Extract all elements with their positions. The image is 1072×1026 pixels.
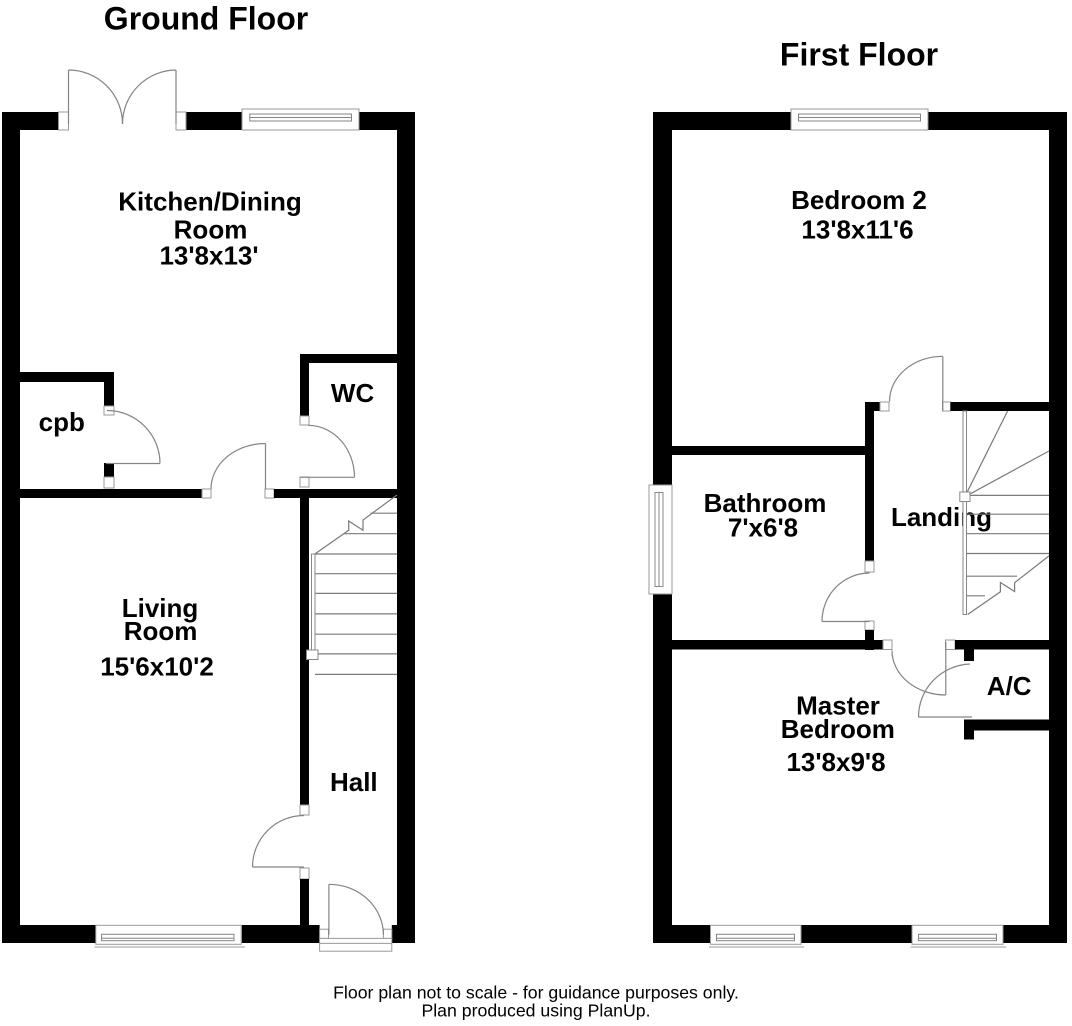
svg-text:13'8x11'6: 13'8x11'6 (801, 215, 913, 245)
svg-text:First Floor: First Floor (780, 37, 938, 73)
svg-text:A/C: A/C (987, 671, 1032, 701)
svg-text:Ground Floor: Ground Floor (104, 1, 308, 37)
svg-text:Landing: Landing (891, 502, 992, 532)
svg-text:Kitchen/Dining: Kitchen/Dining (118, 186, 301, 216)
svg-text:Bedroom: Bedroom (781, 714, 895, 744)
svg-text:Plan produced using PlanUp.: Plan produced using PlanUp. (421, 1001, 650, 1021)
svg-text:13'8x13': 13'8x13' (159, 241, 258, 271)
svg-text:Bedroom 2: Bedroom 2 (791, 185, 927, 215)
svg-text:13'8x9'8: 13'8x9'8 (786, 747, 885, 777)
svg-text:Floor plan not to scale - for: Floor plan not to scale - for guidance p… (333, 983, 739, 1003)
svg-text:cpb: cpb (39, 407, 85, 437)
svg-text:15'6x10'2: 15'6x10'2 (100, 651, 214, 681)
svg-text:7'x6'8: 7'x6'8 (728, 513, 798, 543)
svg-text:Hall: Hall (330, 767, 378, 797)
svg-text:WC: WC (331, 378, 375, 408)
svg-text:Room: Room (124, 616, 198, 646)
